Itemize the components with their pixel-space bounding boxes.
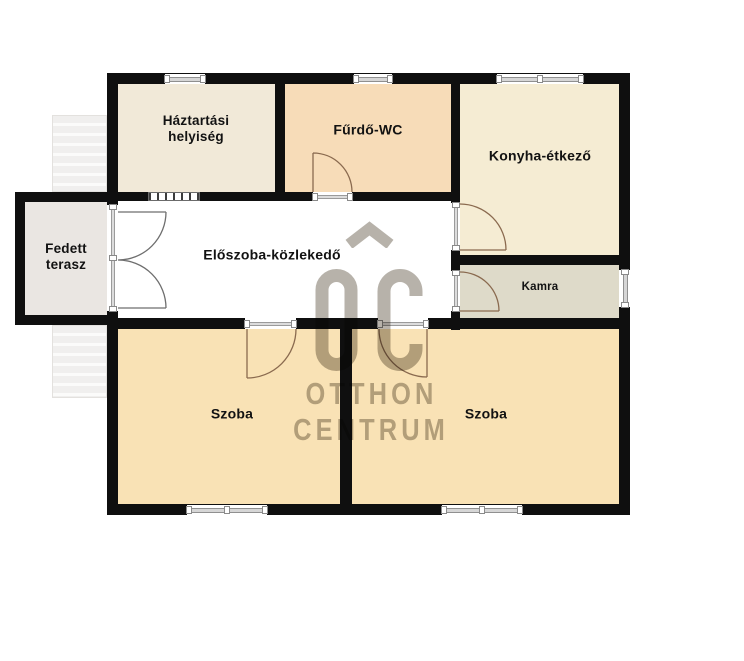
- room-label-furdo-wc: Fűrdő-WC: [333, 122, 402, 139]
- room-label-szoba-bal: Szoba: [211, 406, 253, 423]
- room-label-eloszoba-kozlekedo: Előszoba-közlekedő: [203, 247, 340, 264]
- room-label-fedett-terasz: Fedett terasz: [45, 241, 87, 273]
- room-label-szoba-jobb: Szoba: [465, 406, 507, 423]
- room-label-konyha-etkezo: Konyha-étkező: [489, 148, 591, 165]
- room-label-kamra: Kamra: [522, 281, 559, 295]
- room-label-haztartasi-helyiseg: Háztartási helyiség: [163, 113, 230, 145]
- labels-layer: Háztartási helyiségFűrdő-WCKonyha-étkező…: [0, 0, 744, 661]
- floorplan: OTTHON CENTRUM Háztartási helyiségFűrdő-…: [0, 0, 744, 661]
